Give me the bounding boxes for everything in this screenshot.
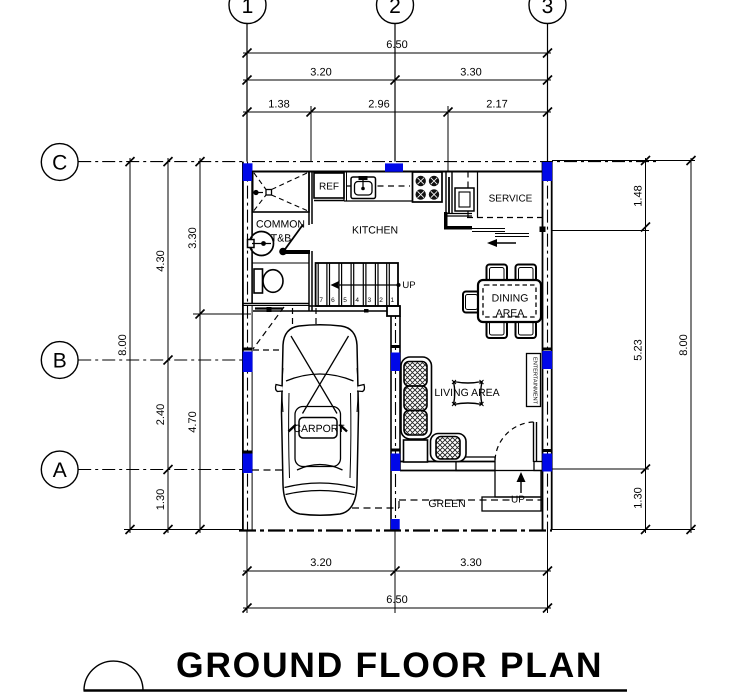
svg-text:4.70: 4.70 xyxy=(187,411,199,432)
svg-text:KITCHEN: KITCHEN xyxy=(352,225,398,237)
svg-text:3: 3 xyxy=(542,0,554,18)
svg-text:GREEN: GREEN xyxy=(428,498,465,510)
svg-text:UP: UP xyxy=(402,280,415,291)
svg-text:1.48: 1.48 xyxy=(633,185,645,206)
svg-text:2.96: 2.96 xyxy=(368,99,389,111)
svg-text:COMMON: COMMON xyxy=(256,219,305,231)
svg-text:5.23: 5.23 xyxy=(633,339,645,360)
svg-text:6.50: 6.50 xyxy=(386,39,407,51)
svg-text:C: C xyxy=(52,152,67,175)
svg-text:A: A xyxy=(53,459,67,482)
svg-text:AREA: AREA xyxy=(496,308,525,320)
svg-text:T&B: T&B xyxy=(271,233,291,245)
svg-text:3.30: 3.30 xyxy=(460,67,481,79)
svg-text:2: 2 xyxy=(379,297,383,304)
svg-text:2: 2 xyxy=(389,0,401,18)
svg-text:1: 1 xyxy=(390,297,394,304)
svg-text:3.20: 3.20 xyxy=(310,67,331,79)
svg-text:UP: UP xyxy=(511,495,525,506)
svg-text:6: 6 xyxy=(331,297,335,304)
svg-text:7: 7 xyxy=(319,297,323,304)
svg-text:8.00: 8.00 xyxy=(117,334,129,355)
svg-text:4.30: 4.30 xyxy=(155,250,167,271)
svg-text:3.20: 3.20 xyxy=(310,557,331,569)
svg-text:2.17: 2.17 xyxy=(486,99,507,111)
svg-text:3.30: 3.30 xyxy=(460,557,481,569)
svg-text:5: 5 xyxy=(343,297,347,304)
svg-text:GROUND FLOOR PLAN: GROUND FLOOR PLAN xyxy=(176,645,603,685)
svg-text:2.40: 2.40 xyxy=(155,404,167,425)
svg-text:CARPORT: CARPORT xyxy=(293,423,345,435)
svg-text:DINING: DINING xyxy=(492,293,529,305)
svg-text:1.30: 1.30 xyxy=(633,487,645,508)
svg-text:B: B xyxy=(53,350,67,373)
svg-text:REF: REF xyxy=(319,182,339,193)
svg-text:6.50: 6.50 xyxy=(386,594,407,606)
svg-text:ENTERTAINMENT: ENTERTAINMENT xyxy=(532,357,538,405)
svg-text:SERVICE: SERVICE xyxy=(489,194,533,205)
svg-text:LIVING AREA: LIVING AREA xyxy=(434,387,499,399)
svg-text:3: 3 xyxy=(367,297,371,304)
svg-text:1: 1 xyxy=(242,0,254,18)
svg-text:3.30: 3.30 xyxy=(187,227,199,248)
svg-text:4: 4 xyxy=(355,297,359,304)
svg-text:1.38: 1.38 xyxy=(268,99,289,111)
svg-text:1.30: 1.30 xyxy=(155,489,167,510)
svg-text:8.00: 8.00 xyxy=(678,334,690,355)
